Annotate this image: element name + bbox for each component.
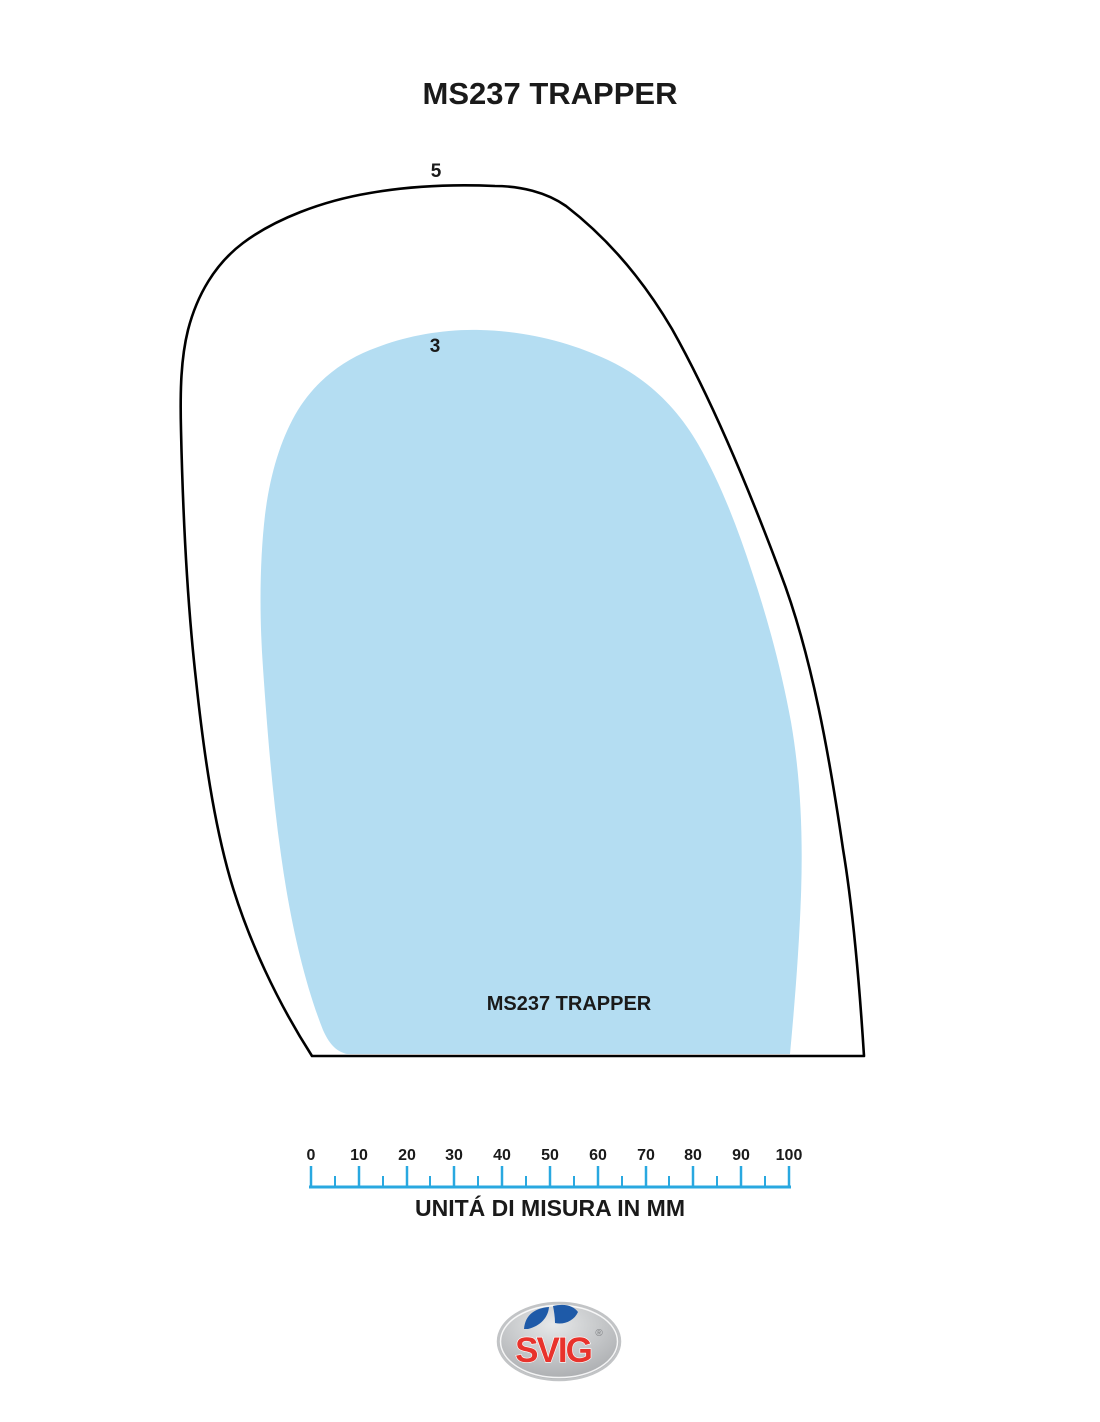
ruler-label-60: 60 xyxy=(574,1147,622,1165)
sole-model-label: MS237 TRAPPER xyxy=(449,993,689,1016)
logo-registered-mark: ® xyxy=(595,1328,603,1339)
ruler-label-20: 20 xyxy=(383,1147,431,1165)
outer-thickness-label: 5 xyxy=(414,161,458,183)
ruler-label-10: 10 xyxy=(335,1147,383,1165)
ruler-label-30: 30 xyxy=(430,1147,478,1165)
svig-logo: SVIG ® xyxy=(494,1299,626,1385)
ruler-label-50: 50 xyxy=(526,1147,574,1165)
ruler-label-40: 40 xyxy=(478,1147,526,1165)
inner-thickness-label: 3 xyxy=(413,336,457,358)
logo-text: SVIG xyxy=(515,1331,591,1370)
ruler-label-80: 80 xyxy=(669,1147,717,1165)
ruler-ticks xyxy=(309,1166,791,1187)
ruler-label-90: 90 xyxy=(717,1147,765,1165)
ruler-caption: UNITÁ DI MISURA IN MM xyxy=(0,1195,1100,1222)
ruler-label-100: 100 xyxy=(765,1147,813,1165)
ruler-label-70: 70 xyxy=(622,1147,670,1165)
catalog-page: MS237 TRAPPER xyxy=(0,0,1100,1422)
ruler-label-0: 0 xyxy=(287,1147,335,1165)
